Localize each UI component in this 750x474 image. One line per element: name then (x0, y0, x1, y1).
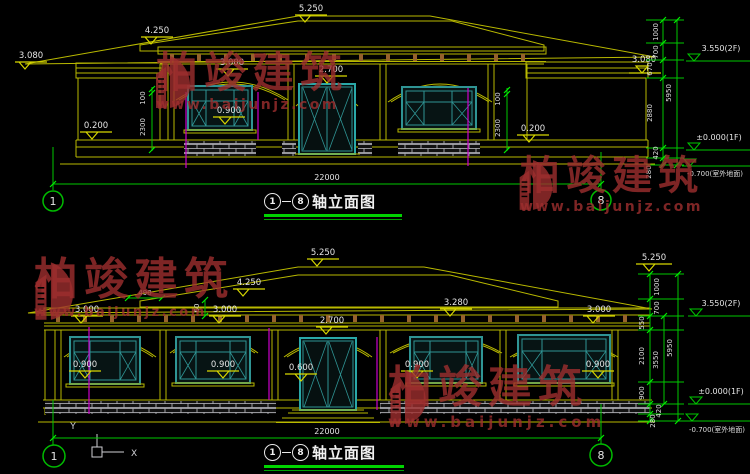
chain-seg: 550 (638, 316, 646, 329)
level-plinth-right: 0.200 (521, 124, 545, 134)
title-underline-thin (264, 470, 404, 471)
vdim-100-right: 100 (494, 92, 502, 105)
title-text: 轴立面图 (312, 191, 376, 212)
level-door-step: 0.600 (289, 363, 313, 373)
level-sill-2: 0.900 (211, 360, 235, 370)
level-sill-1: 0.900 (73, 360, 97, 370)
top-view-title: 1 8 轴立面图 (264, 191, 402, 220)
level-window-sill: 0.900 (217, 106, 241, 116)
ucs-x-label: X (131, 449, 137, 459)
vdim-2300-left: 2300 (139, 118, 147, 136)
level-eave-left: 3.000 (75, 305, 99, 315)
title-axis-start: 1 (264, 444, 281, 461)
walls (60, 62, 655, 164)
chain-seg: 700 (652, 45, 660, 58)
chain-seg: 700 (653, 301, 661, 314)
ucs-icon: Y X (69, 422, 137, 459)
axis-bubble-8: 8 (598, 449, 605, 462)
level-sill-4: 0.900 (586, 360, 610, 370)
level-ridge: 5.250 (311, 248, 335, 258)
title-axis-end: 8 (292, 444, 309, 461)
axis-bubble-8: 8 (598, 194, 605, 207)
marker-floor2: 3.550(2F) (702, 299, 741, 308)
level-plinth-left: 0.200 (84, 121, 108, 131)
axis-bubble-1: 1 (50, 195, 57, 208)
level-ridge: 5.250 (299, 4, 323, 14)
level-markers-right: 3.550(2F) ±0.000(1F) -0.700(室外地面) (684, 299, 750, 434)
marker-floor1: ±0.000(1F) (698, 387, 744, 396)
chain-total: 5950 (665, 84, 673, 102)
bottom-elevation-drawing: 5.250 4.250 3.000 3.000 2.700 3.280 3.00… (0, 237, 750, 474)
level-porch-beam: 3.280 (444, 298, 468, 308)
marker-floor2: 3.550(2F) (702, 44, 741, 53)
chain-seg: 420 (652, 146, 660, 159)
title-underline-thin (264, 219, 402, 220)
chain-seg: 1000 (652, 23, 660, 41)
chain-top-level: 5.250 (642, 253, 666, 263)
level-sill-3: 0.900 (405, 360, 429, 370)
level-porch-roof: 4.250 (145, 26, 169, 36)
title-text: 轴立面图 (312, 442, 376, 463)
overall-width-dim: 22000 (314, 427, 339, 436)
chain-mid-total: 3550 (652, 351, 660, 369)
chain-seg: 1000 (653, 278, 661, 296)
marker-ground: -0.700(室外地面) (689, 425, 745, 434)
level-eave-right: 3.000 (587, 305, 611, 315)
eave-overhang-height: 60 (193, 304, 201, 313)
chain-seg: 280 (645, 165, 653, 178)
chain-seg: 280 (649, 414, 657, 427)
title-underline (264, 214, 402, 217)
chain-seg: 670 (646, 62, 654, 75)
level-arch-window2: 3.000 (213, 305, 237, 315)
title-underline (264, 465, 404, 468)
chain-total: 5950 (666, 339, 674, 357)
eave-overhang-width: 490 (138, 289, 151, 297)
title-axis-start: 1 (264, 193, 281, 210)
vdim-100-left: 100 (139, 91, 147, 104)
overall-width-dim: 22000 (314, 173, 339, 182)
bottom-view-title: 1 8 轴立面图 (264, 442, 404, 471)
entry-door (295, 84, 360, 154)
level-eave-left: 3.080 (19, 51, 43, 61)
level-arch-window: 3.000 (220, 58, 244, 68)
chain-seg: 900 (638, 386, 646, 399)
entry-door (276, 338, 380, 423)
chain-seg: 2880 (646, 104, 654, 122)
title-dash (282, 201, 291, 202)
level-markers-right: 3.550(2F) ±0.000(1F) -0.700(室外地面) (682, 44, 750, 178)
axis-bubble-1: 1 (51, 450, 58, 463)
cad-canvas: 5.250 4.250 3.080 3.000 2.700 0.900 0.20… (0, 0, 750, 474)
dimension-chain: 1000 700 670 2880 420 280 5950 (645, 17, 684, 179)
title-dash (282, 452, 291, 453)
title-axis-end: 8 (292, 193, 309, 210)
marker-floor1: ±0.000(1F) (696, 133, 742, 142)
roof (25, 16, 655, 64)
ucs-y-label: Y (69, 422, 76, 432)
level-roof-mid: 4.250 (237, 278, 261, 288)
level-arch-door: 2.700 (319, 65, 343, 75)
chain-seg: 2100 (638, 347, 646, 365)
level-arch-door: 2.700 (320, 316, 344, 326)
marker-ground: -0.700(室外地面) (687, 169, 743, 178)
vdim-2300-right: 2300 (494, 119, 502, 137)
